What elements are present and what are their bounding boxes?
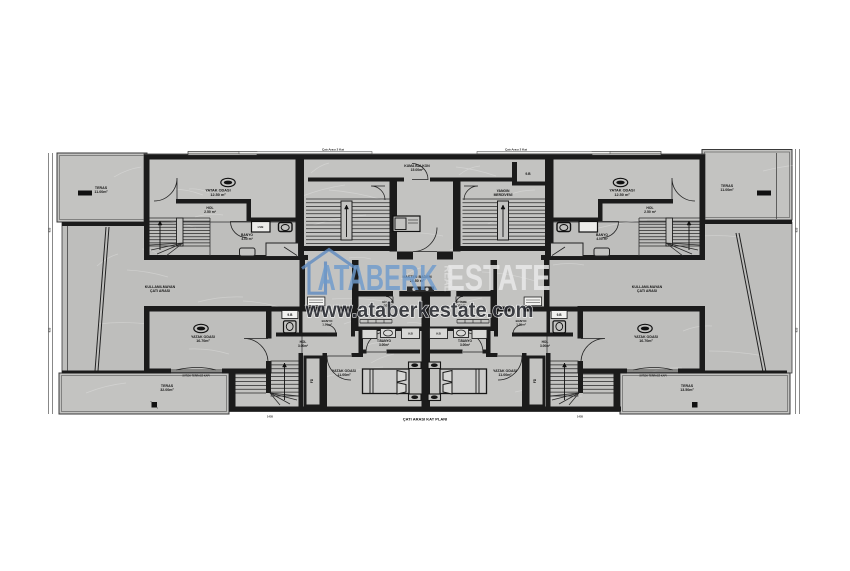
svg-text:ÇATI ARASI KAT PLANI: ÇATI ARASI KAT PLANI [403, 417, 448, 422]
svg-text:12.50 m²: 12.50 m² [614, 193, 630, 197]
svg-text:9.B: 9.B [408, 332, 414, 336]
svg-text:9.B: 9.B [557, 313, 563, 317]
svg-text:13.50m²: 13.50m² [680, 388, 694, 392]
svg-text:925: 925 [795, 327, 799, 332]
svg-text:9.B: 9.B [525, 172, 531, 176]
svg-text:9.B: 9.B [436, 332, 442, 336]
svg-text:ÇATI ARASI: ÇATI ARASI [637, 289, 657, 293]
svg-text:www.ataberkestate.com: www.ataberkestate.com [305, 298, 534, 322]
svg-text:9.B: 9.B [287, 313, 293, 317]
svg-text:3.00m²: 3.00m² [379, 343, 389, 347]
svg-text:FD: FD [310, 378, 314, 383]
svg-text:3.00m²: 3.00m² [298, 344, 308, 348]
svg-text:2.50 m²: 2.50 m² [204, 210, 217, 214]
svg-text:12.50 m²: 12.50 m² [210, 193, 226, 197]
svg-text:3.00m²: 3.00m² [540, 344, 550, 348]
svg-text:11.00m²: 11.00m² [498, 373, 512, 377]
svg-text:ATABERK: ATABERK [318, 257, 438, 298]
svg-text:SÜT.DK TERRACE KAPI: SÜT.DK TERRACE KAPI [182, 375, 210, 378]
svg-text:1.50m²: 1.50m² [322, 323, 332, 327]
svg-text:11.00m²: 11.00m² [337, 373, 351, 377]
svg-text:SÜT.DK TERRACE KAPI: SÜT.DK TERRACE KAPI [639, 375, 667, 378]
svg-text:Çatı Arası 2 Kat: Çatı Arası 2 Kat [322, 148, 344, 152]
svg-text:11.00m²: 11.00m² [94, 190, 108, 194]
svg-text:2.50 m²: 2.50 m² [644, 210, 657, 214]
svg-text:3.00m²: 3.00m² [460, 343, 470, 347]
svg-text:YATAK ODASI: YATAK ODASI [609, 189, 634, 193]
svg-text:1.50m²: 1.50m² [516, 323, 526, 327]
svg-text:1455: 1455 [577, 415, 584, 419]
svg-text:ESTATE: ESTATE [447, 257, 551, 298]
svg-text:YATAK ODASI: YATAK ODASI [205, 189, 230, 193]
svg-text:925: 925 [48, 227, 52, 232]
svg-text:32.00m²: 32.00m² [160, 388, 174, 392]
svg-text:4.00 m²: 4.00 m² [241, 237, 253, 241]
svg-text:LVB: LVB [258, 225, 265, 229]
svg-text:925: 925 [48, 327, 52, 332]
svg-text:11.00m²: 11.00m² [720, 188, 734, 192]
svg-text:4.00 m²: 4.00 m² [596, 237, 608, 241]
svg-text:ÇATI ARASI: ÇATI ARASI [150, 289, 170, 293]
svg-text:16.70m²: 16.70m² [639, 339, 653, 343]
svg-text:15.00m²: 15.00m² [411, 168, 424, 172]
svg-text:925: 925 [795, 227, 799, 232]
svg-text:FD: FD [533, 378, 537, 383]
svg-text:16.70m²: 16.70m² [196, 339, 210, 343]
svg-text:MERDİVENİ: MERDİVENİ [494, 193, 513, 197]
svg-text:1455: 1455 [267, 415, 274, 419]
svg-text:Çatı Arası 2 Kat: Çatı Arası 2 Kat [505, 148, 527, 152]
